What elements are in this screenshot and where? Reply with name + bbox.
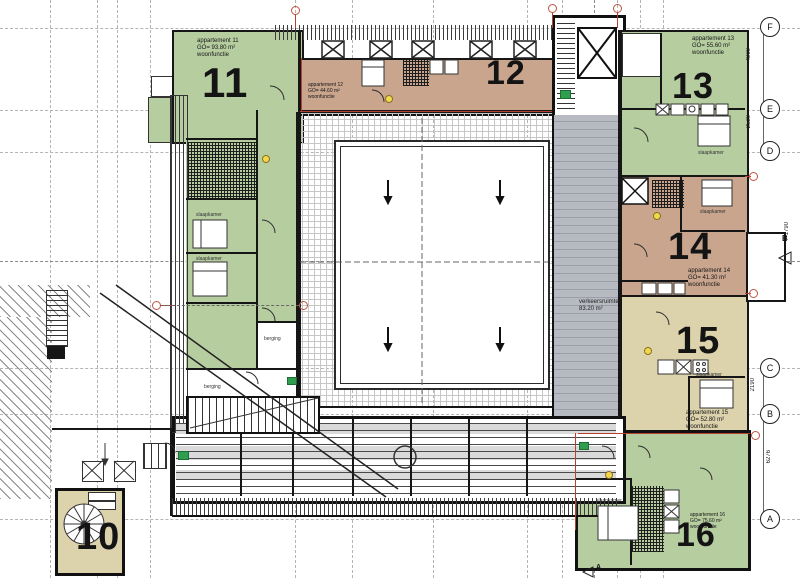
apartment-area: GO= 41.30 m²: [688, 275, 730, 282]
ramp-lines: [100, 285, 398, 497]
red-marker-stem: [295, 14, 296, 28]
apartment-name: appartement 13: [692, 36, 734, 43]
light-point: [644, 347, 652, 355]
exit-sign: [579, 442, 589, 450]
apartment-16-label: appartement 16 GO= 75.60 m² woonfunctie: [690, 512, 725, 530]
survey-marker: [299, 301, 308, 310]
apartment-15-label: appartement 15 GO= 52.80 m² woonfunctie: [686, 410, 728, 432]
dimension-line: [763, 27, 764, 151]
apartment-14-number: 14: [668, 228, 712, 266]
apartment-name: appartement 11: [197, 38, 239, 45]
grid-bubble-c: C: [760, 358, 780, 378]
apartment-12-number: 12: [486, 56, 526, 90]
survey-marker: [749, 172, 758, 181]
apartment-function: woonfunctie: [692, 50, 734, 57]
light-point: [653, 212, 661, 220]
dimension-c-b: 2190: [750, 378, 756, 391]
corridor-area: 83.20 m²: [579, 306, 619, 313]
exit-sign: [560, 90, 571, 99]
room-label-bedroom: slaapkamer: [698, 150, 724, 156]
section-arrow-right: [779, 252, 791, 264]
room-label-bedroom: slaapkamer: [696, 372, 722, 378]
survey-marker: [751, 431, 760, 440]
survey-marker: [152, 301, 161, 310]
elevator-icon: [578, 28, 616, 78]
section-label-right: B: [782, 234, 788, 243]
shaft-icon: [622, 178, 648, 204]
red-boundary-line: [301, 58, 302, 112]
apartment-14-label: appartement 14 GO= 41.30 m² woonfunctie: [688, 268, 730, 290]
room-label-storage: berging: [264, 336, 281, 342]
survey-marker: [291, 6, 300, 15]
column-x-icons: [82, 461, 134, 480]
apartment-10-number: 10: [76, 518, 120, 556]
red-boundary-line: [300, 111, 552, 112]
dimension-line: [763, 368, 764, 519]
beds: [193, 60, 733, 540]
dimension-b-a: 6276: [766, 450, 772, 463]
apartment-11-label: appartement 11 GO= 93.80 m² woonfunctie: [197, 38, 239, 60]
kitchen-units: [430, 60, 728, 533]
apartment-15-number: 15: [676, 322, 720, 360]
dimension-f-e: 4900: [746, 48, 752, 61]
dimension-e-d: 2520: [746, 115, 752, 128]
apartment-area: GO= 55.60 m²: [692, 43, 734, 50]
survey-marker: [548, 4, 557, 13]
apartment-function: woonfunctie: [690, 524, 725, 530]
courtyard-ticks: [385, 180, 503, 350]
corridor-name: verkeersruimte: [579, 299, 619, 306]
red-marker-stem: [617, 12, 618, 28]
center-lines: [300, 118, 548, 404]
room-label-bedroom: slaapkamer: [700, 209, 726, 215]
reference-dash-line: [162, 305, 299, 306]
door-arcs: [165, 86, 712, 480]
red-boundary-line: [575, 433, 576, 530]
apartment-name: appartement 14: [688, 268, 730, 275]
section-label-bottom: A: [596, 564, 601, 571]
room-label-storage: berging: [204, 384, 221, 390]
exit-sign: [178, 451, 189, 460]
room-label-bedroom: slaapkamer: [596, 498, 622, 504]
floor-plan: F E D C B A 4900 2520 1790 2190 6276 B A…: [0, 0, 800, 578]
light-point: [385, 95, 393, 103]
grid-bubble-f: F: [760, 17, 780, 37]
grid-bubble-b: B: [760, 404, 780, 424]
red-boundary-line: [578, 433, 750, 434]
light-point: [262, 155, 270, 163]
corridor-label: verkeersruimte 83.20 m²: [579, 299, 619, 313]
apartment-11-number: 11: [202, 62, 248, 104]
grid-bubble-d: D: [760, 141, 780, 161]
apartment-name: appartement 15: [686, 410, 728, 417]
direction-arrow: [102, 443, 108, 465]
apartment-area: GO= 93.80 m²: [197, 45, 239, 52]
section-arrow-bottom: [583, 567, 593, 577]
apartment-function: woonfunctie: [197, 52, 239, 59]
grid-bubble-e: E: [760, 99, 780, 119]
column-circle: [394, 446, 416, 468]
apartment-13-number: 13: [672, 68, 714, 104]
exit-sign: [287, 377, 297, 385]
apartment-area: GO= 52.80 m²: [686, 417, 728, 424]
red-marker-stem: [552, 12, 553, 28]
apartment-12-label: appartement 12 GO= 44.60 m² woonfunctie: [308, 82, 343, 100]
apartment-13-label: appartement 13 GO= 55.60 m² woonfunctie: [692, 36, 734, 58]
grid-bubble-a: A: [760, 509, 780, 529]
room-label-bedroom: slaapkamer: [196, 256, 222, 262]
room-label-bedroom: slaapkamer: [196, 212, 222, 218]
survey-marker: [749, 289, 758, 298]
apartment-function: woonfunctie: [686, 424, 728, 431]
light-point: [605, 471, 613, 479]
survey-marker: [613, 4, 622, 13]
apartment-function: woonfunctie: [308, 94, 343, 100]
apartment-function: woonfunctie: [688, 282, 730, 289]
